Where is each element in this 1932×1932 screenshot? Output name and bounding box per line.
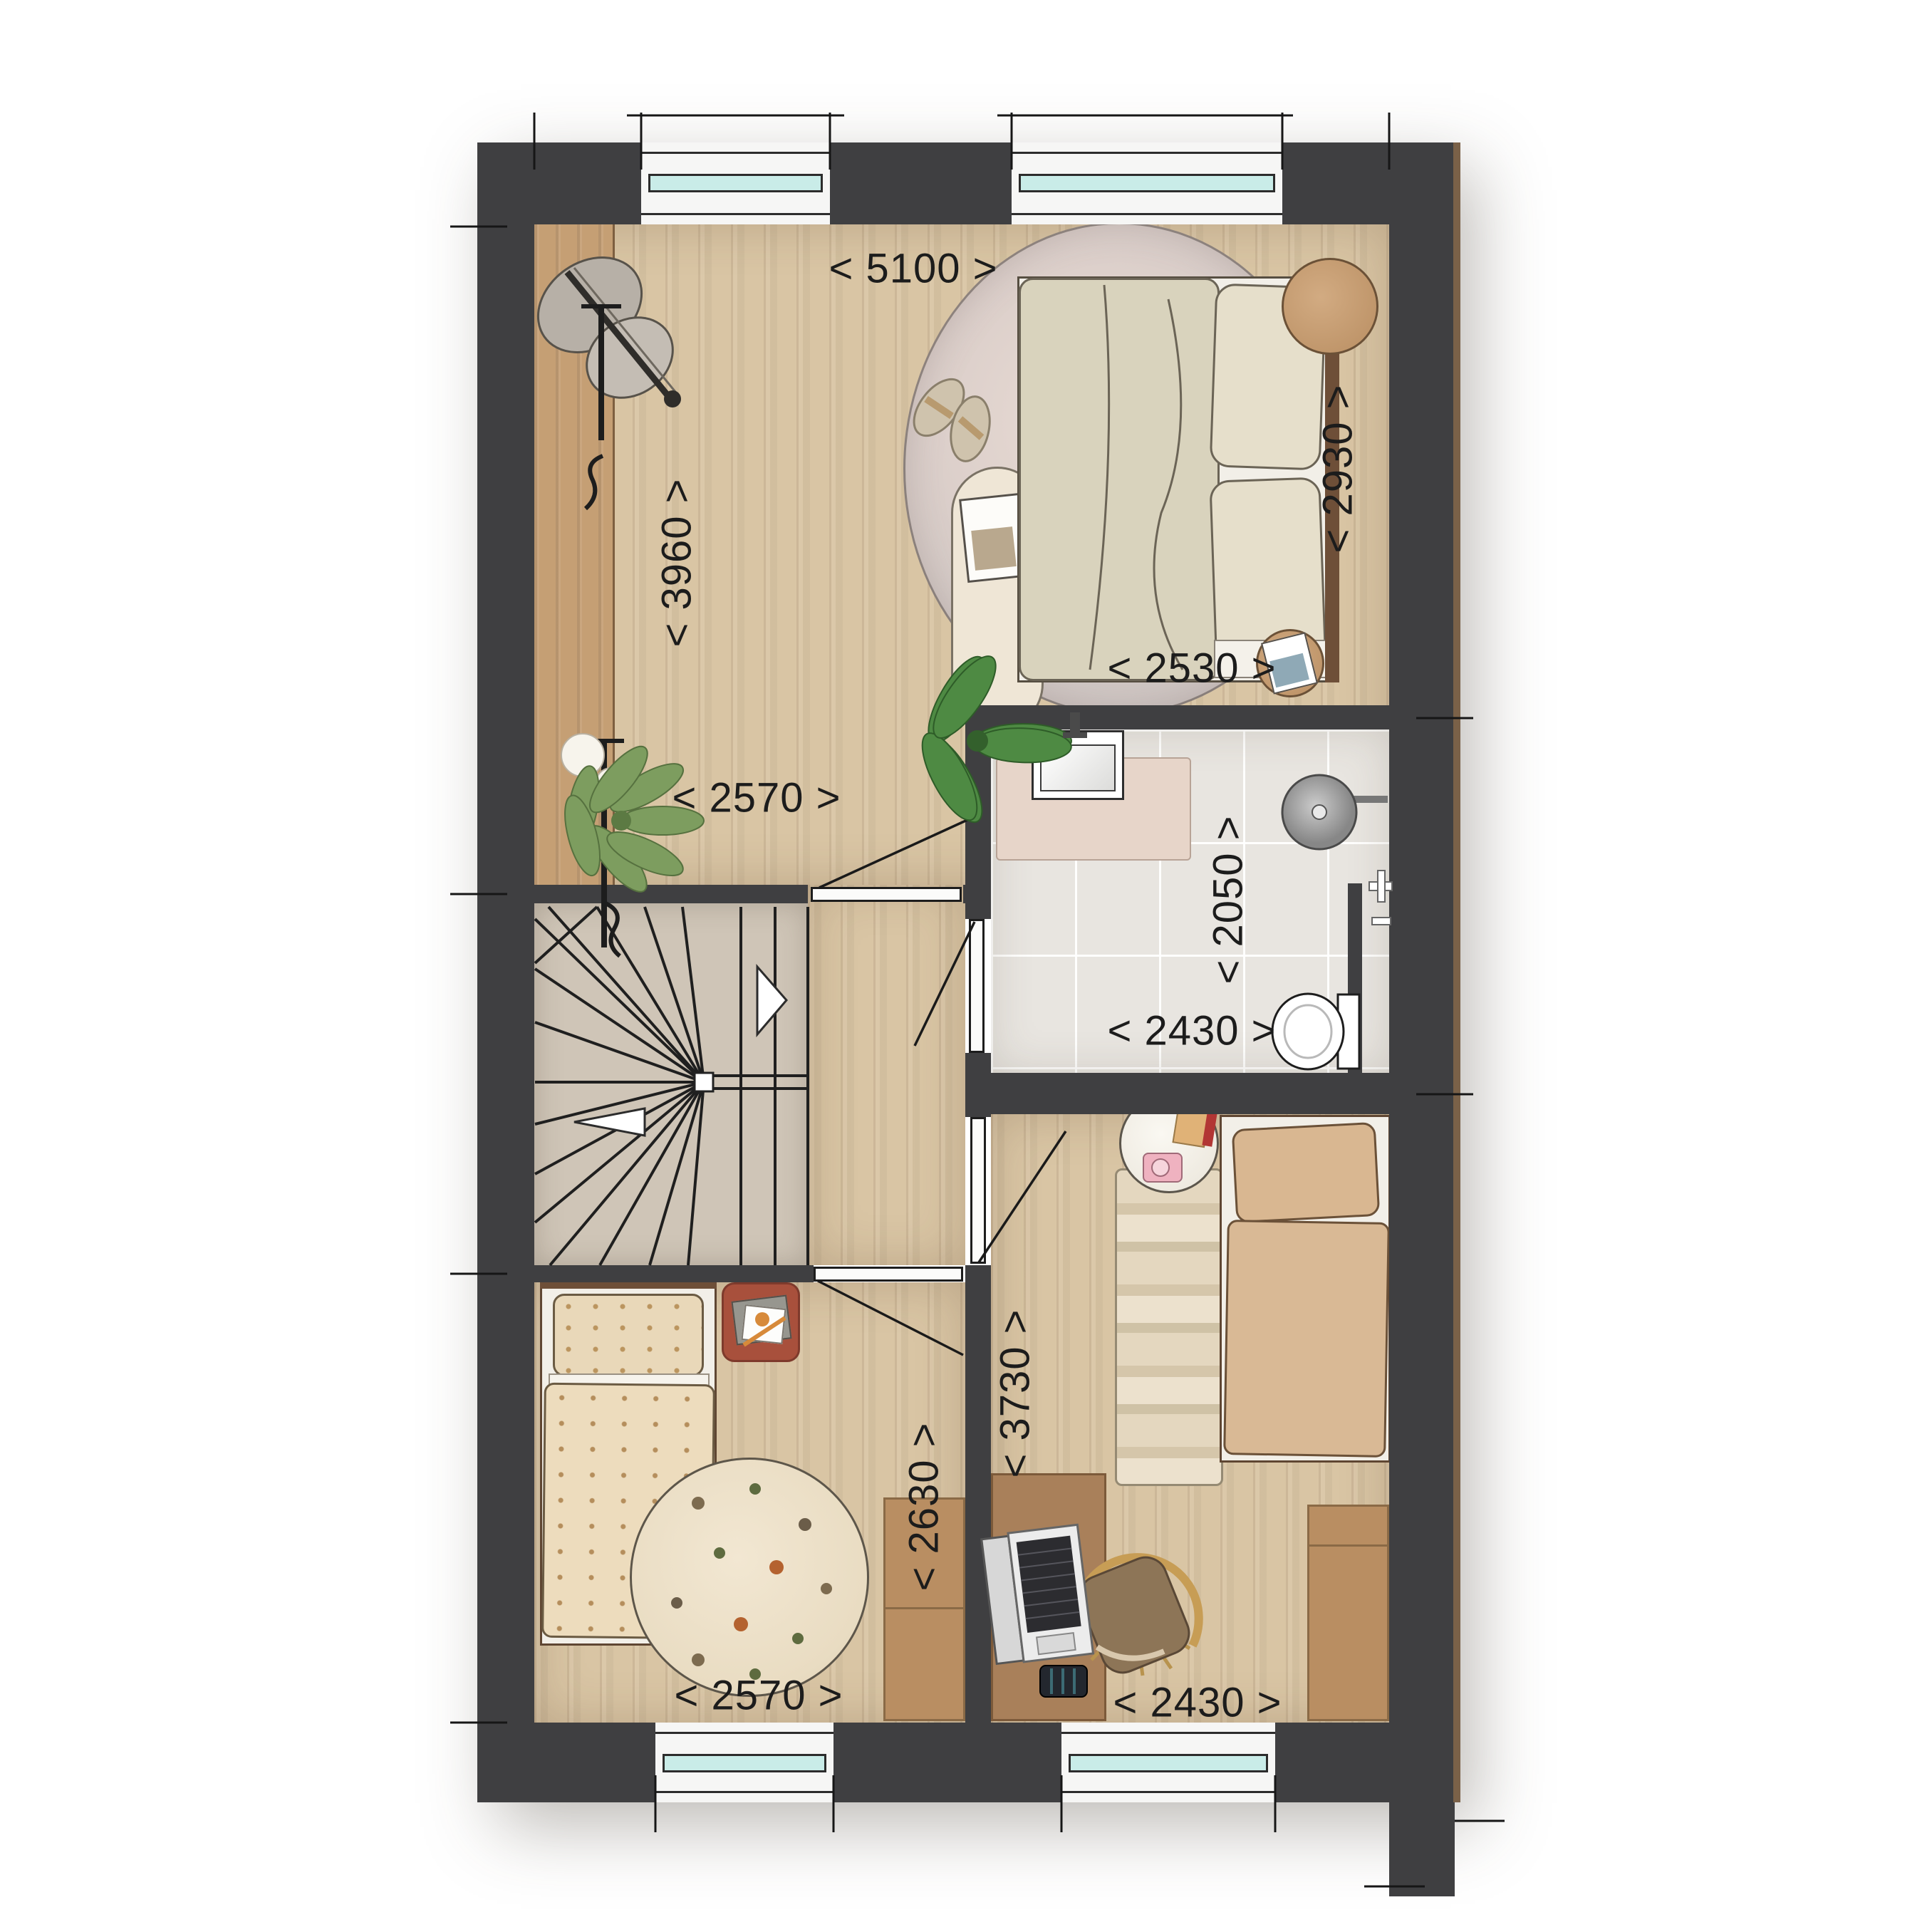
wall-bedroom-divider	[965, 1265, 991, 1723]
dim-bedroom2-depth: < 2630 >	[900, 1423, 948, 1591]
white-paper	[742, 1304, 786, 1344]
bedroom3-wardrobe	[1307, 1505, 1389, 1721]
floorplan: < 5100 > < 3960 > < 2930 > < 2530 > < 25…	[0, 0, 1932, 1932]
wall-left	[477, 142, 534, 1802]
wall-bottom-a	[477, 1723, 655, 1802]
wall-bottom-b	[833, 1723, 1061, 1802]
door-bedroom2	[814, 1267, 963, 1282]
bedroom3-duvet	[1223, 1220, 1390, 1458]
window-top-right	[1012, 142, 1282, 224]
window-glass	[1019, 174, 1275, 192]
window-glass	[1069, 1754, 1268, 1772]
camera-lens	[1151, 1158, 1170, 1177]
stairs-floor	[534, 903, 808, 1265]
master-bed-duvet	[1019, 278, 1220, 681]
dotted-round-rug	[630, 1458, 869, 1697]
wall-right	[1389, 142, 1453, 1802]
wall-right-outer-edge	[1453, 142, 1460, 1802]
corridor-floor	[808, 885, 965, 1265]
dim-bedroom1-width: < 5100 >	[829, 245, 998, 293]
wall-bathroom-top	[965, 705, 1389, 729]
window-frame-line	[655, 1791, 833, 1793]
window-frame-line	[1061, 1791, 1275, 1793]
wall-bottom-c	[1275, 1723, 1453, 1802]
door-bathroom	[969, 919, 985, 1053]
window-frame-line	[655, 1732, 833, 1734]
bedroom3-wardrobe-shelf-line	[1307, 1544, 1389, 1547]
door-master-bedroom	[811, 887, 962, 902]
window-glass	[648, 174, 823, 192]
window-frame-line	[1012, 152, 1282, 154]
dim-bathroom-width: < 2430 >	[1108, 1007, 1277, 1055]
window-frame-line	[641, 152, 830, 154]
runner-rug	[1115, 1168, 1223, 1486]
wall-stairs-top	[534, 885, 808, 903]
dim-bedroom1-depth: < 3960 >	[653, 479, 701, 648]
window-bottom-right	[1061, 1723, 1275, 1802]
door-bedroom3	[970, 1117, 986, 1264]
window-top-left	[641, 142, 830, 224]
bedroom3-pillow	[1232, 1122, 1381, 1223]
dim-bedroom2-width: < 2570 >	[675, 1672, 843, 1720]
window-frame-line	[1012, 213, 1282, 215]
sink-basin	[1040, 744, 1116, 791]
wall-bathroom-left-upper	[965, 705, 991, 919]
dim-bedroom3-width: < 2430 >	[1113, 1679, 1282, 1727]
window-glass	[663, 1754, 826, 1772]
wall-corridor-bottom	[534, 1265, 814, 1282]
dim-bathroom-depth: < 2050 >	[1205, 816, 1252, 985]
wall-extension-bottom-right	[1389, 1802, 1455, 1896]
window-frame-line	[1061, 1732, 1275, 1734]
bedroom2-wardrobe-shelf-line	[883, 1607, 965, 1609]
window-frame-line	[641, 213, 830, 215]
bedroom2-pillow	[553, 1294, 704, 1376]
desk	[991, 1473, 1106, 1721]
dim-bed-zone-depth: < 2930 >	[1314, 385, 1362, 554]
window-bottom-left	[655, 1723, 833, 1802]
dim-bedroom1-inner-width: < 2570 >	[672, 774, 841, 822]
wardrobe-strip	[534, 224, 615, 885]
dim-bed-zone-width: < 2530 >	[1108, 645, 1277, 692]
wall-bathroom-bottom	[965, 1073, 1389, 1114]
magazine-cover-image	[971, 526, 1017, 571]
side-table-top	[1282, 258, 1378, 355]
dim-bedroom3-depth: < 3730 >	[992, 1309, 1039, 1478]
wall-top-b	[830, 142, 1012, 224]
wall-toilet-partition	[1348, 883, 1362, 1073]
